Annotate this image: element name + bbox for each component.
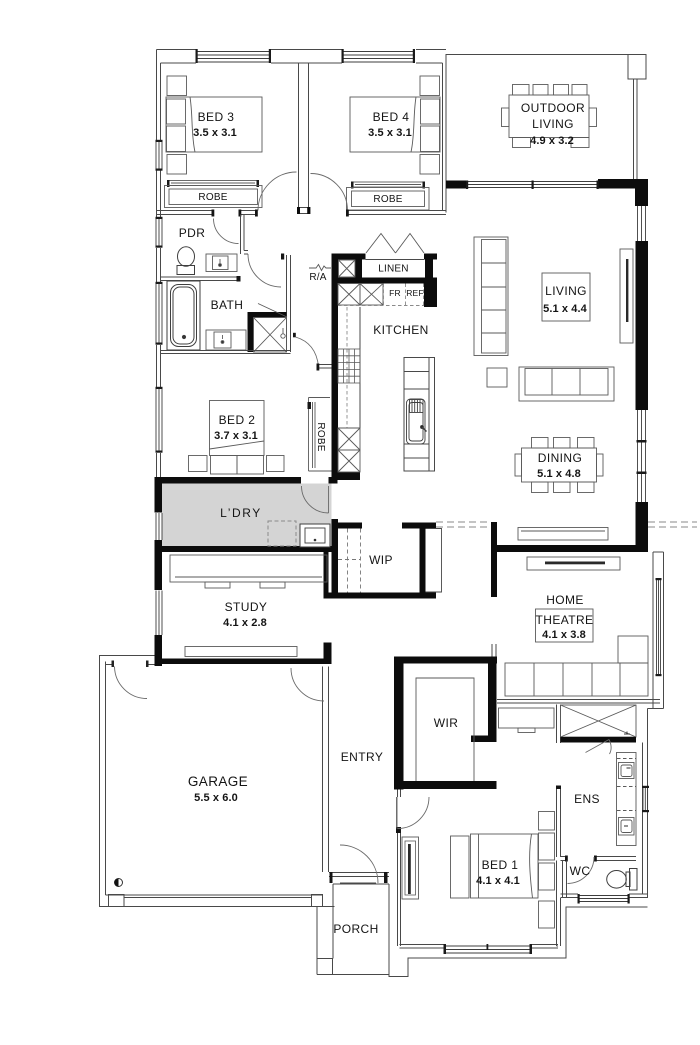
svg-text:5.1 x 4.8: 5.1 x 4.8: [537, 468, 581, 480]
svg-text:4.1 x 4.1: 4.1 x 4.1: [476, 875, 520, 887]
svg-text:DINING: DINING: [538, 451, 582, 465]
svg-text:WC: WC: [570, 864, 591, 878]
svg-text:4.9 x 3.2: 4.9 x 3.2: [530, 135, 574, 147]
svg-text:3.5 x 3.1: 3.5 x 3.1: [193, 127, 237, 139]
svg-text:5.1 x 4.4: 5.1 x 4.4: [543, 303, 587, 315]
svg-text:WIP: WIP: [369, 553, 393, 567]
svg-text:OUTDOOR: OUTDOOR: [521, 101, 585, 115]
svg-text:ROBE: ROBE: [198, 192, 227, 203]
svg-text:FR: FR: [389, 288, 401, 298]
svg-text:4.1 x 2.8: 4.1 x 2.8: [223, 617, 267, 629]
svg-text:R/A: R/A: [309, 272, 326, 283]
svg-text:LIVING: LIVING: [532, 117, 574, 131]
svg-text:3.5 x 3.1: 3.5 x 3.1: [368, 127, 412, 139]
svg-text:THEATRE: THEATRE: [536, 613, 594, 627]
svg-text:REF: REF: [406, 288, 424, 298]
svg-text:GARAGE: GARAGE: [188, 774, 248, 789]
svg-text:BED 4: BED 4: [373, 110, 410, 124]
svg-text:LINEN: LINEN: [378, 264, 408, 275]
svg-text:BATH: BATH: [211, 298, 244, 312]
svg-text:BED 2: BED 2: [219, 413, 256, 427]
svg-text:4.1 x 3.8: 4.1 x 3.8: [542, 629, 586, 641]
svg-text:ROBE: ROBE: [315, 422, 326, 451]
svg-text:HOME: HOME: [546, 593, 584, 607]
svg-text:WIR: WIR: [434, 716, 459, 730]
svg-text:3.7 x 3.1: 3.7 x 3.1: [214, 430, 258, 442]
svg-text:ROBE: ROBE: [373, 194, 402, 205]
svg-text:LIVING: LIVING: [545, 284, 587, 298]
svg-text:ENTRY: ENTRY: [341, 750, 383, 764]
svg-text:PORCH: PORCH: [333, 922, 378, 936]
svg-text:KITCHEN: KITCHEN: [373, 323, 428, 337]
svg-text:ENS: ENS: [574, 792, 600, 806]
svg-text:PDR: PDR: [179, 226, 206, 240]
svg-text:L’DRY: L’DRY: [220, 506, 262, 520]
svg-text:STUDY: STUDY: [225, 600, 268, 614]
svg-text:BED 1: BED 1: [482, 858, 519, 872]
svg-text:BED 3: BED 3: [198, 110, 235, 124]
svg-text:5.5 x 6.0: 5.5 x 6.0: [194, 792, 238, 804]
